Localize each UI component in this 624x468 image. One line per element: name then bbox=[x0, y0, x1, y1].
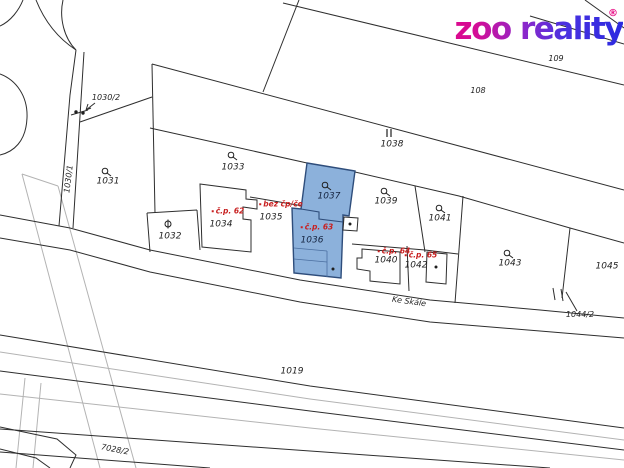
house-number-label-bez: bez čp/če bbox=[259, 200, 303, 208]
parcel-label-108: 108 bbox=[470, 87, 485, 95]
parcel-label-1030-2: 1030/2 bbox=[92, 94, 120, 102]
small-building-with-dot bbox=[343, 217, 358, 231]
yard-symbol-1041 bbox=[436, 205, 445, 213]
parcel-label-1036: 1036 bbox=[301, 237, 324, 246]
parcel-label-1045: 1045 bbox=[596, 263, 619, 272]
parcel-label-1033: 1033 bbox=[222, 164, 245, 173]
house-number-label-65: č.p. 65 bbox=[405, 251, 438, 259]
parcel-label-1041: 1041 bbox=[429, 215, 452, 224]
building-dot bbox=[332, 268, 335, 271]
yard-symbol-1031 bbox=[102, 168, 111, 176]
cadastral-map: 109 108 1038 1030/2 1030/1 1031 1032 103… bbox=[0, 0, 624, 468]
yard-symbol-1033 bbox=[228, 152, 237, 160]
map-linework bbox=[0, 0, 624, 468]
zoo-reality-logo: zoo reality bbox=[413, 6, 623, 54]
house-number-label-62: č.p. 62 bbox=[212, 207, 245, 215]
yard-symbol-1043 bbox=[504, 250, 513, 258]
registered-trademark-icon: ® bbox=[608, 8, 618, 19]
well-symbol-1032 bbox=[165, 220, 171, 229]
parcel-label-1032: 1032 bbox=[159, 233, 182, 242]
parcel-label-1031: 1031 bbox=[97, 178, 120, 187]
parcel-label-1039: 1039 bbox=[375, 198, 398, 207]
parcel-label-1040: 1040 bbox=[375, 257, 398, 266]
double-bar-symbol bbox=[387, 129, 391, 137]
house-number-label-63: č.p. 63 bbox=[301, 223, 334, 231]
yard-symbol-1039 bbox=[381, 188, 390, 196]
survey-dots bbox=[74, 110, 437, 268]
parcel-label-1037: 1037 bbox=[318, 193, 341, 202]
parcel-label-1043: 1043 bbox=[499, 260, 522, 269]
parcel-label-1034: 1034 bbox=[210, 221, 233, 230]
parcel-label-1038: 1038 bbox=[381, 141, 404, 150]
parcel-label-1042: 1042 bbox=[405, 262, 428, 271]
parcel-label-1019: 1019 bbox=[281, 368, 304, 377]
parcel-label-1035: 1035 bbox=[260, 214, 283, 223]
parcel-label-1044-2: 1044/2 bbox=[566, 311, 594, 319]
parcel-label-109: 109 bbox=[548, 55, 563, 63]
